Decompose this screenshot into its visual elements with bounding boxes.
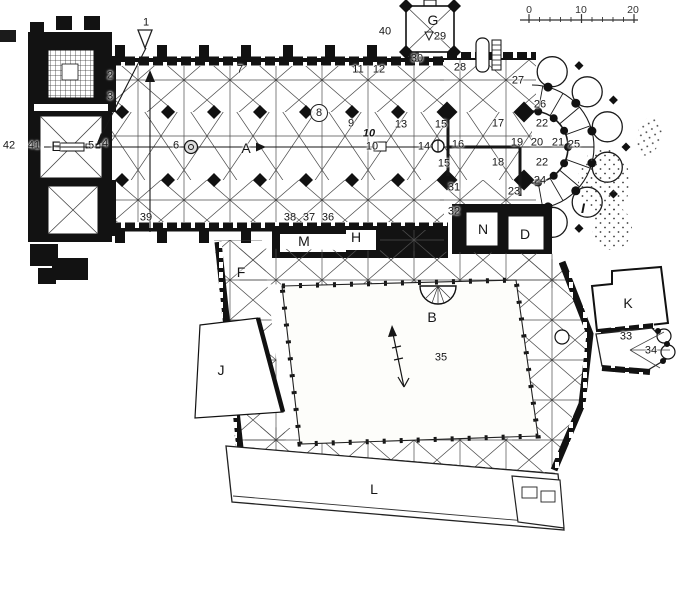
south-transept-chapels	[452, 204, 552, 254]
floor-plan-page: GEAINDMHFBJKL123456789101011121314151516…	[0, 0, 678, 591]
cloister-garth	[282, 280, 538, 444]
north-aisle	[104, 66, 444, 112]
chapter-house-column	[555, 330, 569, 344]
west-porch-room	[48, 186, 98, 234]
chapel-G	[399, 0, 461, 59]
chapel-D	[508, 216, 544, 250]
south-aisle	[104, 180, 444, 222]
stair-tower-room	[48, 50, 94, 98]
room-H	[346, 230, 376, 250]
room-L-annex	[512, 476, 564, 528]
transept-furniture	[476, 38, 501, 72]
nave	[104, 112, 444, 180]
plan-drawing	[0, 0, 678, 591]
marker-10	[374, 142, 386, 151]
chapel-N	[466, 212, 498, 246]
church-body	[104, 56, 536, 222]
nave-marker-6	[185, 141, 198, 154]
